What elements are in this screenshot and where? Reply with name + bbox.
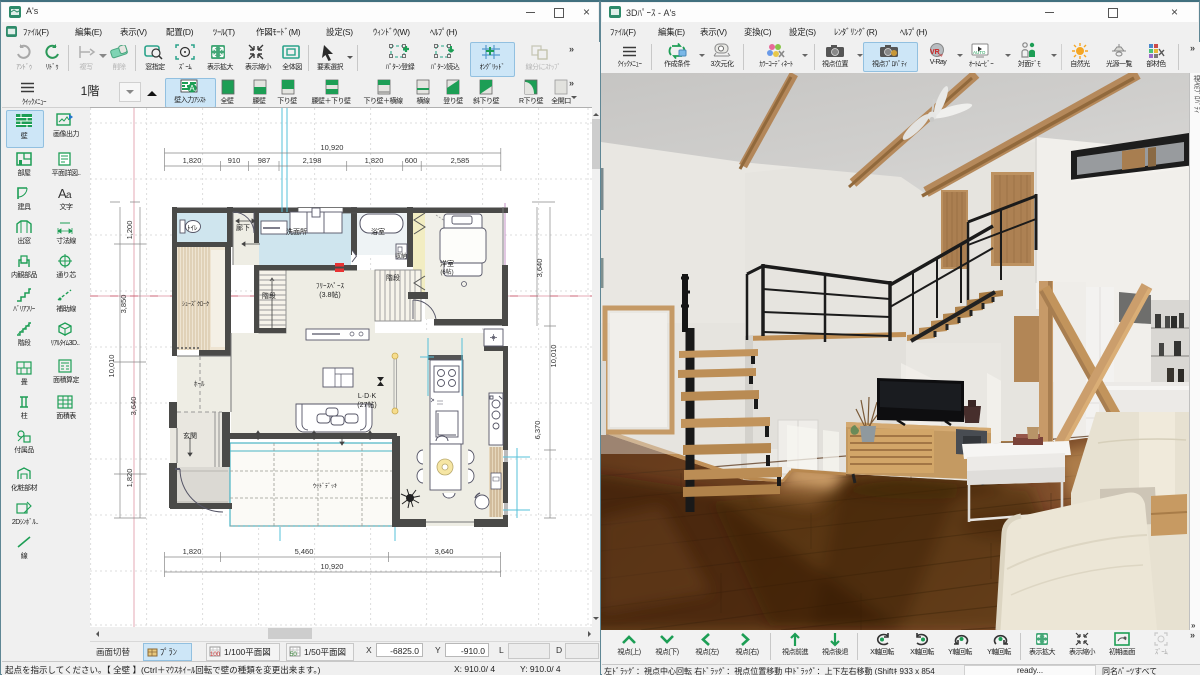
- svg-text:2,585: 2,585: [451, 156, 470, 165]
- svg-text:収納: 収納: [395, 252, 407, 260]
- svg-text:100: 100: [210, 652, 221, 657]
- svg-text:浴室: 浴室: [371, 227, 385, 236]
- svg-text:2,198: 2,198: [303, 156, 322, 165]
- svg-text:5,460: 5,460: [295, 547, 314, 556]
- svg-text:3,850: 3,850: [119, 295, 128, 314]
- svg-text:(6帖): (6帖): [440, 268, 453, 276]
- svg-text:ﾄｲﾚ: ﾄｲﾚ: [187, 225, 198, 232]
- svg-text:洗面所: 洗面所: [286, 227, 307, 236]
- svg-text:50: 50: [290, 652, 297, 657]
- svg-text:洋室: 洋室: [440, 259, 454, 268]
- svg-text:10,920: 10,920: [321, 143, 344, 152]
- svg-text:1,820: 1,820: [365, 156, 384, 165]
- svg-text:1,200: 1,200: [125, 221, 134, 240]
- svg-text:10,010: 10,010: [107, 355, 116, 378]
- svg-text:(27帖): (27帖): [357, 400, 376, 409]
- svg-text:1,820: 1,820: [183, 156, 202, 165]
- svg-text:A: A: [189, 84, 195, 93]
- svg-text:1,820: 1,820: [183, 547, 202, 556]
- svg-text:987: 987: [258, 156, 271, 165]
- svg-text:10,920: 10,920: [321, 562, 344, 571]
- svg-text:10,010: 10,010: [549, 345, 558, 368]
- svg-text:ｳｯﾄﾞﾃﾞｯｷ: ｳｯﾄﾞﾃﾞｯｷ: [313, 483, 337, 490]
- svg-text:3,640: 3,640: [435, 547, 454, 556]
- svg-text:(3.8帖): (3.8帖): [319, 290, 340, 299]
- svg-text:玄関: 玄関: [183, 431, 197, 440]
- svg-text:600: 600: [405, 156, 418, 165]
- svg-text:3,640: 3,640: [129, 397, 138, 416]
- svg-text:1,820: 1,820: [125, 469, 134, 488]
- svg-text:L·D·K: L·D·K: [358, 393, 377, 400]
- svg-text:ﾎｰﾙ: ﾎｰﾙ: [194, 380, 205, 388]
- svg-text:ｼｭｰｽﾞｸﾛｰｸ: ｼｭｰｽﾞｸﾛｰｸ: [182, 301, 209, 308]
- svg-text:3,640: 3,640: [535, 259, 544, 278]
- svg-text:910: 910: [228, 156, 241, 165]
- svg-text:AUTO: AUTO: [973, 50, 986, 55]
- svg-text:階段: 階段: [262, 291, 276, 300]
- svg-text:階段: 階段: [386, 273, 400, 282]
- svg-text:廊下: 廊下: [236, 223, 250, 232]
- svg-text:6,370: 6,370: [533, 421, 542, 440]
- svg-text:ﾌﾘｰｽﾍﾟｰｽ: ﾌﾘｰｽﾍﾟｰｽ: [316, 282, 344, 290]
- svg-text:ay: ay: [939, 52, 943, 57]
- svg-text:a: a: [66, 190, 72, 200]
